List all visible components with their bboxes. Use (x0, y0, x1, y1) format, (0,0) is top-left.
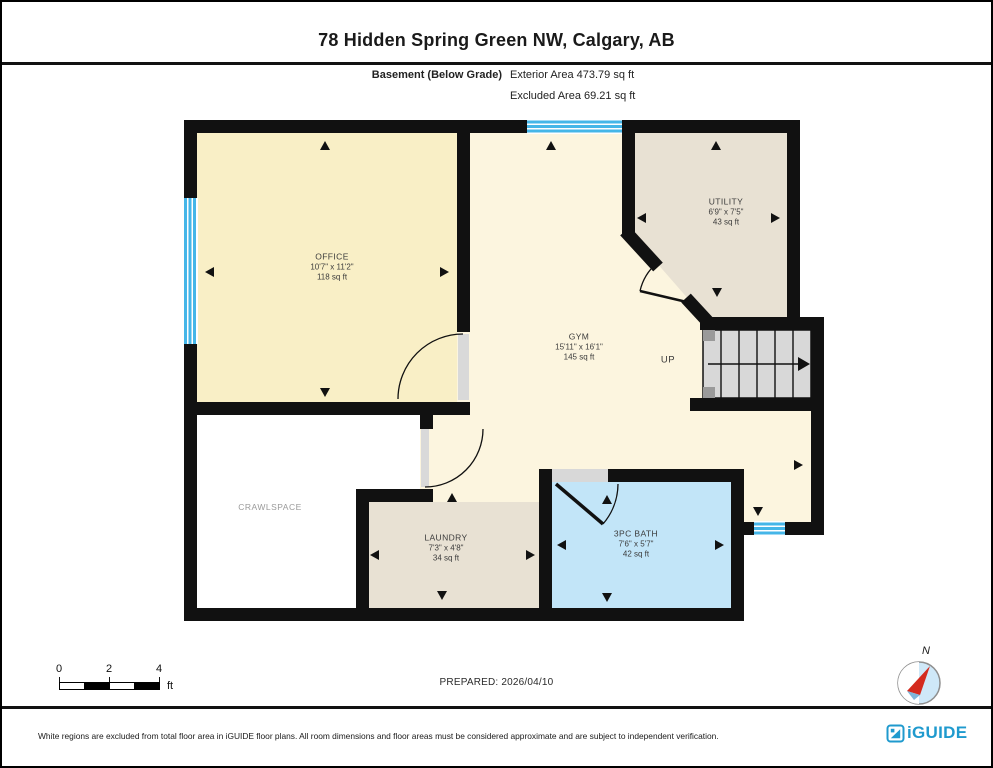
scale-tick-4: 4 (154, 663, 164, 675)
header-divider (2, 62, 991, 65)
room-label-crawlspace: CRAWLSPACE (238, 502, 302, 513)
excluded-area: Excluded Area 69.21 sq ft (510, 90, 635, 102)
page-title: 78 Hidden Spring Green NW, Calgary, AB (2, 30, 991, 51)
room-label-gym: GYM 15'11" x 16'1" 145 sq ft (555, 331, 603, 363)
scale-tick-0: 0 (54, 663, 64, 675)
iguide-logo-text: iGUIDE (907, 723, 967, 743)
footer-disclaimer: White regions are excluded from total fl… (38, 731, 719, 741)
footer-divider (2, 706, 991, 709)
iguide-logo-icon (886, 724, 905, 743)
compass-icon (890, 652, 950, 708)
stairs (703, 330, 811, 398)
room-label-utility: UTILITY 6'9" x 7'5" 43 sq ft (709, 196, 744, 228)
room-label-office: OFFICE 10'7" x 11'2" 118 sq ft (310, 251, 353, 283)
compass-north-label: N (922, 645, 930, 657)
stairs-up-label: UP (661, 355, 675, 366)
prepared-date: PREPARED: 2026/04/10 (2, 677, 991, 688)
floor-plan-svg (170, 108, 830, 638)
floorplan-page: 78 Hidden Spring Green NW, Calgary, AB B… (0, 0, 993, 768)
scale-tick-2: 2 (104, 663, 114, 675)
room-label-laundry: LAUNDRY 7'3" x 4'8" 34 sq ft (424, 532, 467, 564)
floor-label: Basement (Below Grade) (2, 69, 502, 81)
exterior-area: Exterior Area 473.79 sq ft (510, 69, 634, 81)
room-label-bath: 3PC BATH 7'6" x 5'7" 42 sq ft (614, 528, 658, 560)
